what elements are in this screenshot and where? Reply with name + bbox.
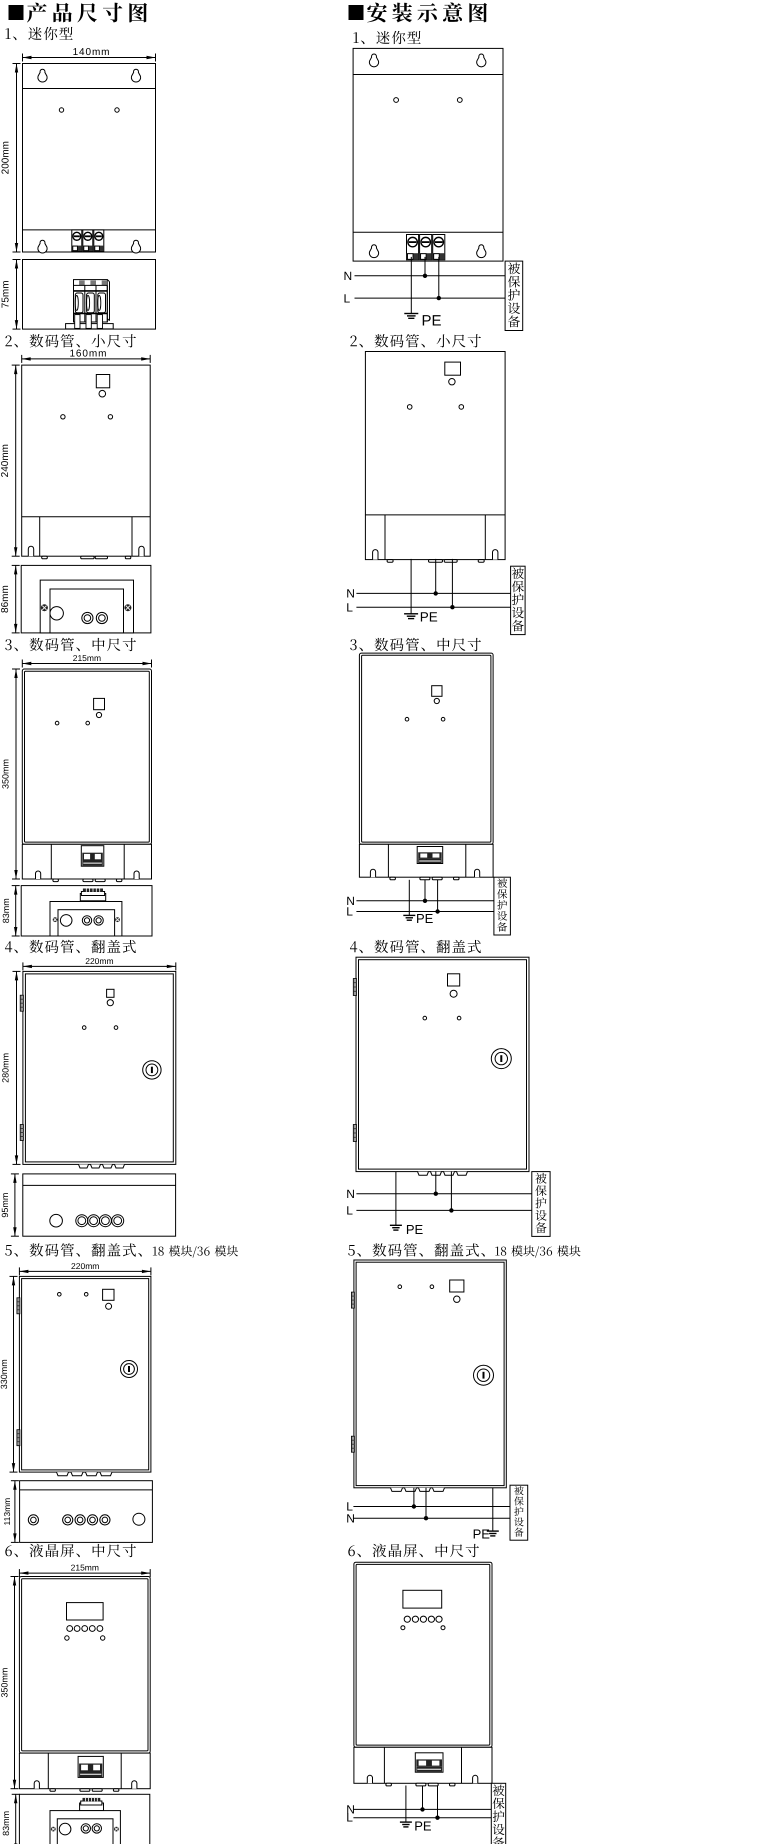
svg-text:L: L [346,1811,353,1825]
svg-text:83mm: 83mm [1,898,11,923]
svg-text:L: L [346,1204,353,1218]
svg-text:350mm: 350mm [0,1668,10,1698]
svg-text:PE: PE [473,1526,491,1541]
svg-text:L: L [346,600,353,614]
svg-text:PE: PE [406,1222,424,1237]
svg-text:N: N [346,1187,355,1201]
svg-text:N: N [344,269,353,283]
svg-text:L: L [346,905,353,919]
svg-text:350mm: 350mm [1,759,11,789]
svg-text:280mm: 280mm [1,1053,11,1083]
svg-text:113mm: 113mm [2,1498,12,1526]
svg-text:N: N [346,587,355,601]
svg-text:215mm: 215mm [71,1563,99,1573]
svg-text:220mm: 220mm [71,1261,99,1271]
svg-text:240mm: 240mm [0,444,11,477]
svg-text:PE: PE [416,911,434,926]
svg-text:140mm: 140mm [73,47,111,58]
svg-text:330mm: 330mm [0,1359,9,1389]
svg-text:PE: PE [422,313,442,330]
svg-text:220mm: 220mm [85,956,113,966]
svg-text:160mm: 160mm [69,348,107,359]
svg-text:L: L [344,291,351,305]
svg-text:215mm: 215mm [73,653,101,663]
svg-text:86mm: 86mm [0,585,11,613]
svg-text:83mm: 83mm [1,1811,11,1836]
svg-text:75mm: 75mm [1,280,12,308]
svg-text:95mm: 95mm [0,1193,10,1218]
svg-text:PE: PE [414,1818,432,1833]
svg-text:200mm: 200mm [1,141,12,174]
svg-text:PE: PE [420,609,438,624]
